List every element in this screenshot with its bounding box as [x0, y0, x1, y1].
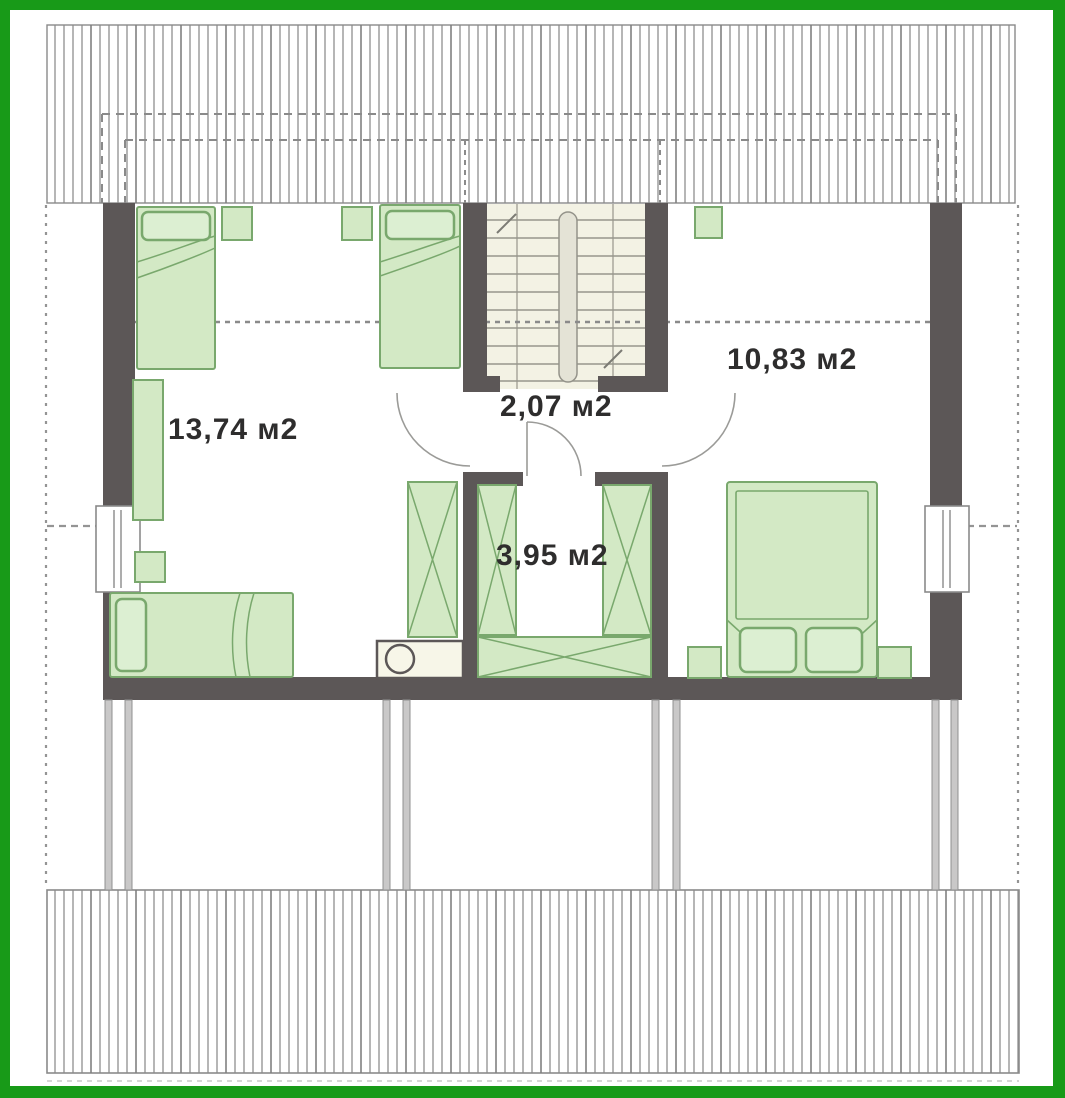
- nightstand: [342, 207, 372, 240]
- nightstand: [695, 207, 722, 238]
- wall-stair-right: [645, 203, 668, 378]
- bed-1-pillow: [142, 212, 210, 240]
- wall-right-upper: [930, 203, 962, 506]
- nightstand: [222, 207, 252, 240]
- nightstand: [688, 647, 721, 678]
- room-area-label-hallway: 2,07 м2: [500, 390, 613, 424]
- terrace-posts: [105, 700, 958, 890]
- bed-3-pillow: [116, 599, 146, 671]
- post: [125, 700, 132, 890]
- door-arc-left-bedroom: [397, 393, 470, 466]
- post: [652, 700, 659, 890]
- wardrobe-x-outer: [408, 482, 457, 637]
- wall-wardrobe-top-left: [463, 472, 523, 486]
- wall-stair-left: [463, 203, 487, 378]
- wardrobe-x-bottom: [478, 637, 651, 677]
- nightstand: [878, 647, 911, 678]
- wall-wardrobe-right: [652, 472, 668, 677]
- post: [673, 700, 680, 890]
- double-bed-pillow-right: [806, 628, 862, 672]
- washing-machine: [377, 641, 463, 678]
- roof-hatch-bottom: [47, 890, 1019, 1073]
- wardrobe-x-right: [603, 485, 651, 635]
- staircase: [487, 204, 645, 389]
- post: [383, 700, 390, 890]
- post: [403, 700, 410, 890]
- wall-wardrobe-top-right: [595, 472, 668, 486]
- post: [105, 700, 112, 890]
- room-area-label-bedroom-left: 13,74 м2: [168, 413, 298, 447]
- room-area-label-wardrobe-room: 3,95 м2: [496, 539, 609, 573]
- room-area-label-bedroom-right: 10,83 м2: [727, 343, 857, 377]
- furniture-wardrobe-room: [478, 485, 651, 677]
- door-arc-right-bedroom: [662, 393, 735, 466]
- small-cabinet: [135, 552, 165, 582]
- wall-left-upper: [103, 203, 135, 506]
- bed-2-pillow: [386, 211, 454, 239]
- wall-wardrobe-left: [463, 472, 478, 677]
- wall-stair-left-cap: [463, 376, 500, 392]
- door-arc-wardrobe: [527, 422, 581, 476]
- tall-cabinet: [133, 380, 163, 520]
- wall-bottom: [103, 677, 962, 700]
- post: [951, 700, 958, 890]
- double-bed-pillow-left: [740, 628, 796, 672]
- floor-plan-image: 13,74 м2 2,07 м2 10,83 м2 3,95 м2: [0, 0, 1065, 1098]
- post: [932, 700, 939, 890]
- window-right: [925, 506, 969, 592]
- stair-handrail: [559, 212, 577, 382]
- furniture-right-bedroom: [688, 207, 911, 678]
